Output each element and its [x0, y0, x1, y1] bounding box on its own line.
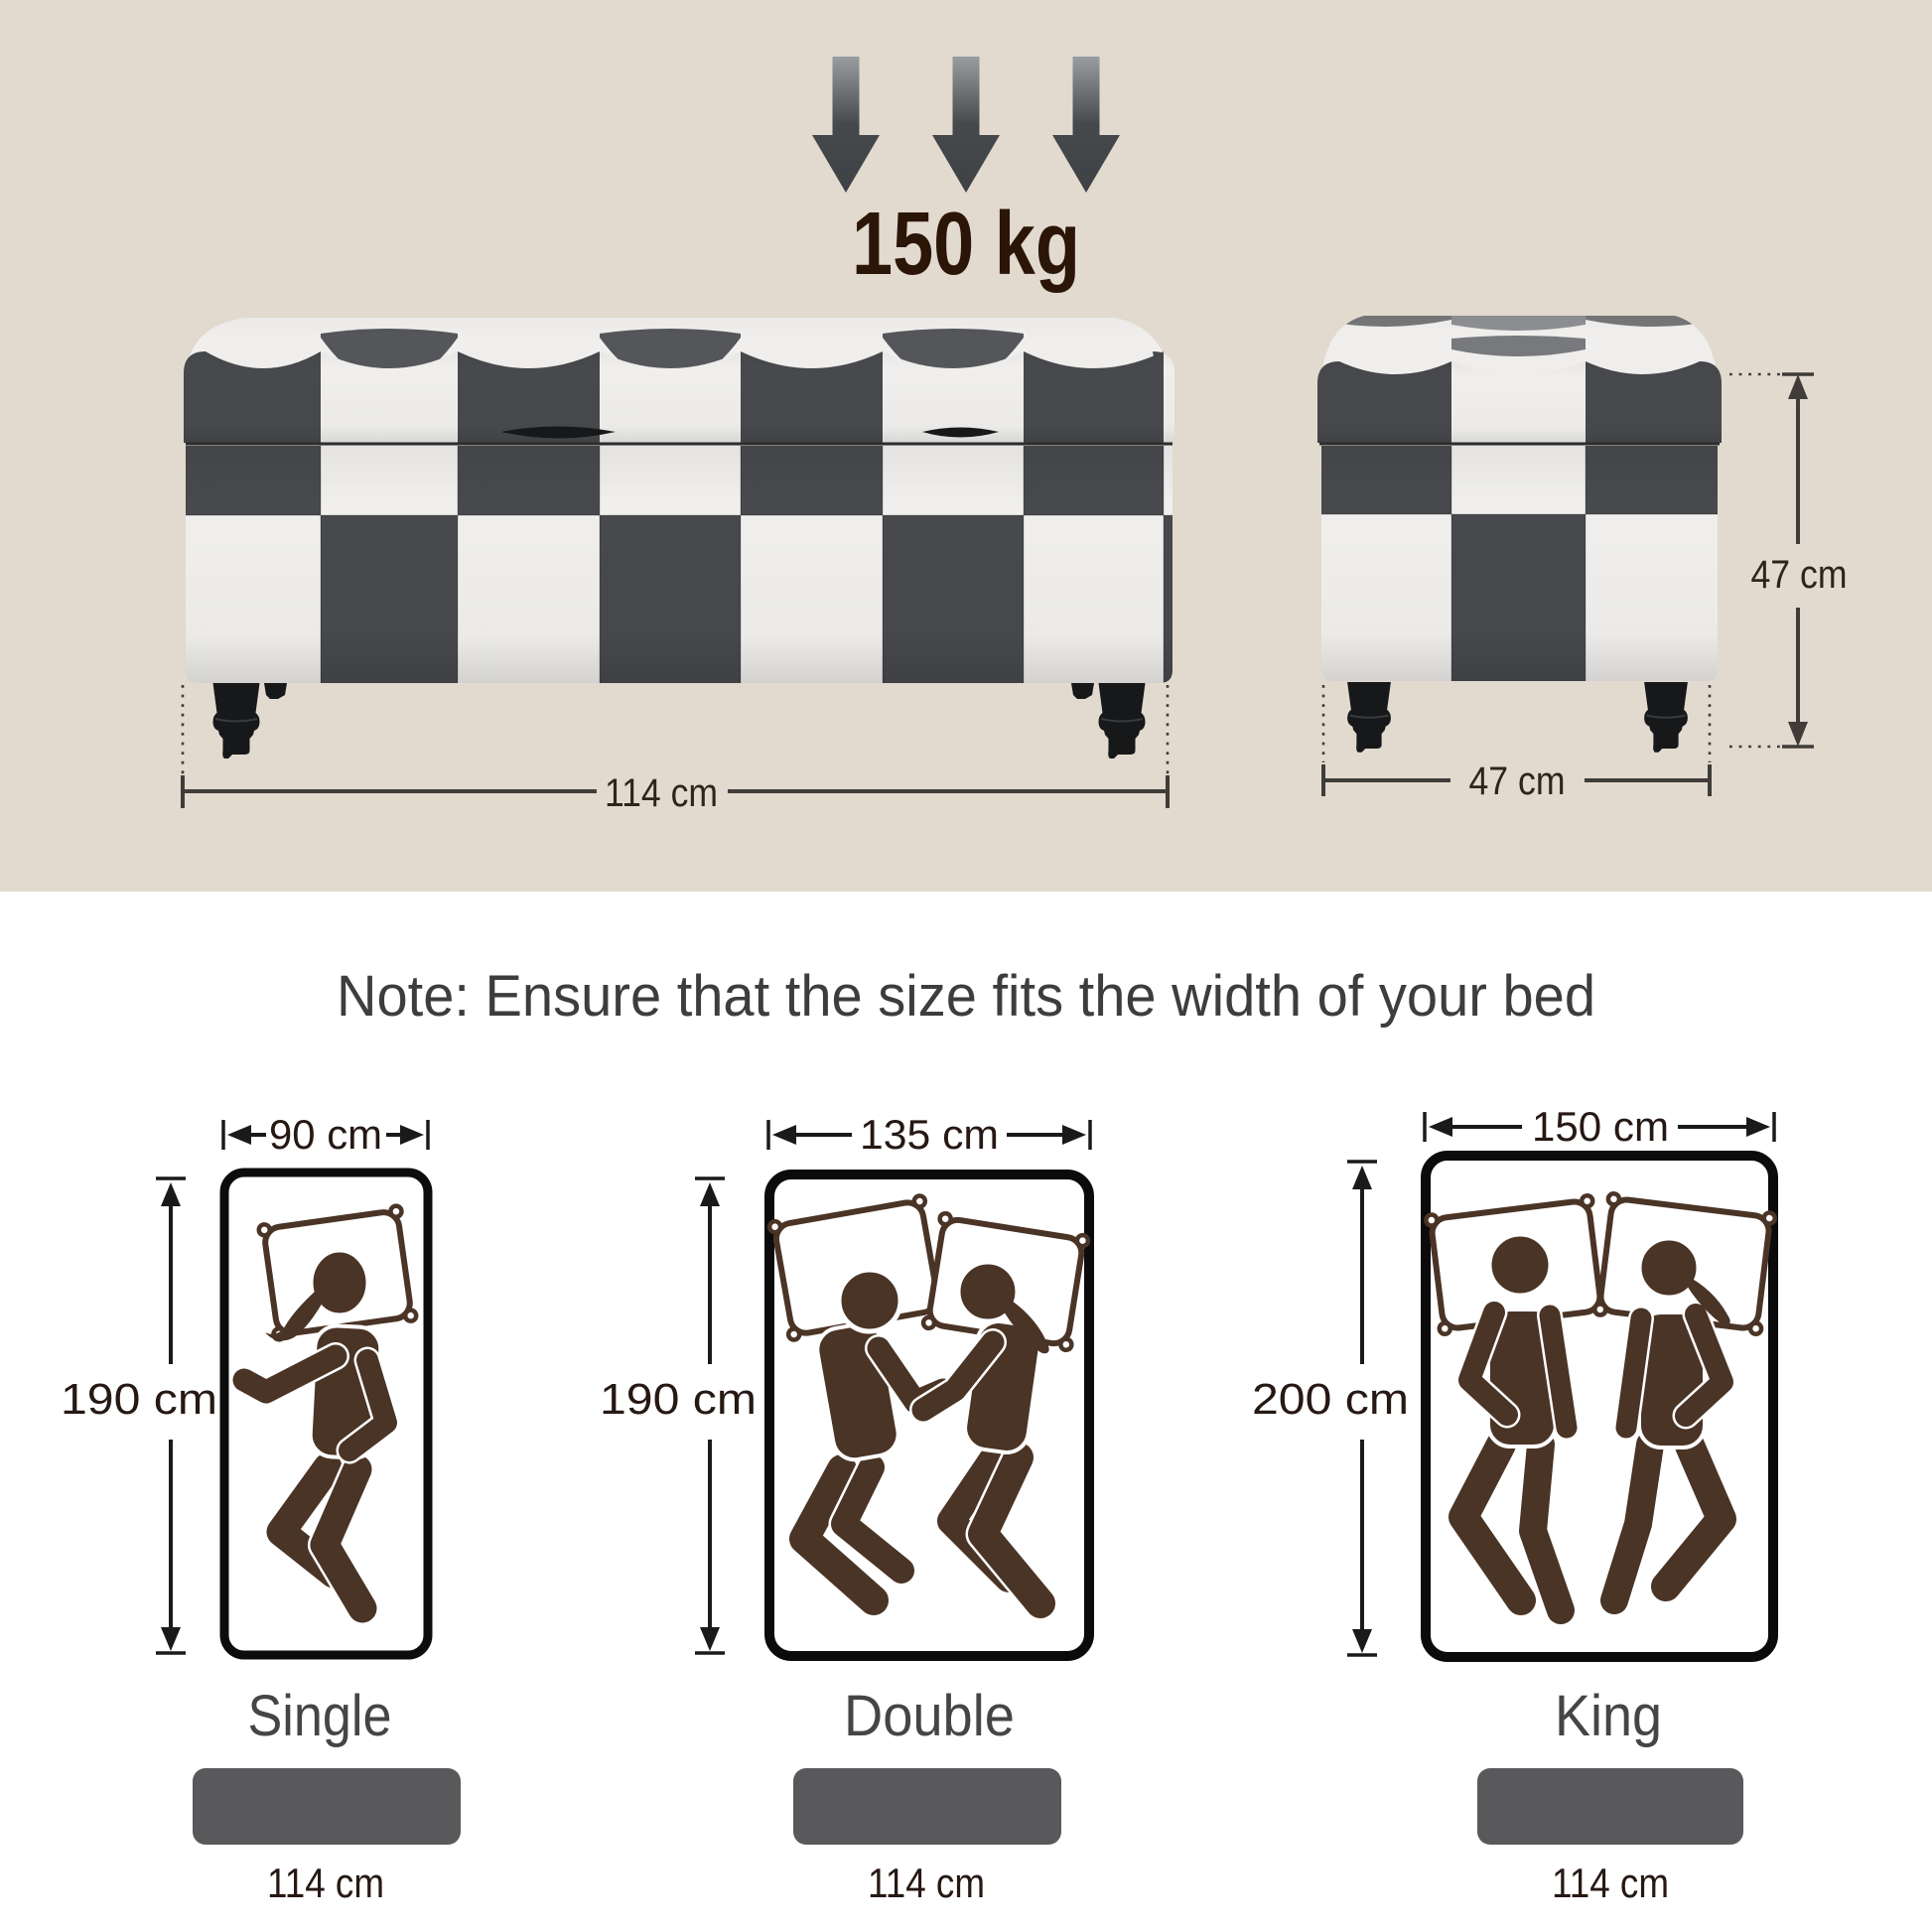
svg-text:190 cm: 190 cm: [61, 1375, 217, 1424]
svg-text:150 cm: 150 cm: [1532, 1103, 1669, 1150]
svg-text:190 cm: 190 cm: [600, 1375, 757, 1424]
svg-text:114 cm: 114 cm: [267, 1860, 384, 1906]
svg-text:47 cm: 47 cm: [1751, 553, 1848, 597]
svg-text:Double: Double: [844, 1684, 1015, 1748]
svg-text:200 cm: 200 cm: [1252, 1375, 1409, 1424]
svg-text:135 cm: 135 cm: [860, 1111, 999, 1158]
svg-text:114 cm: 114 cm: [868, 1860, 985, 1906]
svg-text:114 cm: 114 cm: [605, 771, 718, 815]
svg-text:Note: Ensure that the size fit: Note: Ensure that the size fits the widt…: [337, 964, 1595, 1029]
svg-text:90 cm: 90 cm: [269, 1111, 382, 1158]
svg-text:King: King: [1555, 1684, 1662, 1748]
svg-text:Single: Single: [248, 1684, 392, 1748]
svg-text:114 cm: 114 cm: [1552, 1860, 1669, 1906]
svg-text:47 cm: 47 cm: [1469, 759, 1566, 803]
svg-text:150 kg: 150 kg: [852, 195, 1080, 294]
